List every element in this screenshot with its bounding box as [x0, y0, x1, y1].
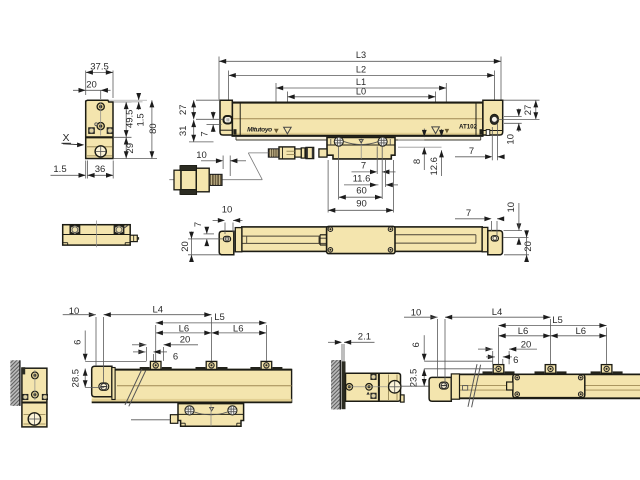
svg-text:49.5: 49.5	[124, 110, 135, 129]
svg-text:80: 80	[148, 123, 159, 134]
svg-text:20: 20	[523, 241, 534, 252]
svg-text:36: 36	[95, 164, 106, 175]
svg-text:37.5: 37.5	[90, 61, 109, 72]
svg-text:L6: L6	[233, 324, 244, 335]
svg-text:L6: L6	[179, 324, 190, 335]
svg-text:90: 90	[356, 199, 367, 210]
svg-text:L4: L4	[153, 304, 164, 315]
svg-text:L3: L3	[356, 50, 366, 60]
svg-text:2.1: 2.1	[358, 332, 371, 343]
svg-text:6: 6	[173, 351, 178, 362]
svg-text:1.5: 1.5	[136, 113, 147, 126]
svg-text:L0: L0	[356, 86, 366, 96]
svg-text:12.6: 12.6	[429, 157, 440, 176]
svg-text:L6: L6	[576, 326, 587, 337]
svg-text:10: 10	[222, 205, 233, 216]
svg-text:7: 7	[199, 131, 210, 136]
svg-text:1.5: 1.5	[53, 164, 66, 175]
svg-text:27: 27	[178, 104, 189, 115]
svg-text:10: 10	[506, 202, 517, 213]
svg-text:L5: L5	[552, 315, 563, 326]
svg-text:7: 7	[466, 208, 471, 219]
svg-text:7: 7	[469, 146, 474, 157]
svg-text:31: 31	[178, 126, 189, 137]
svg-text:10: 10	[69, 306, 80, 317]
svg-text:L4: L4	[492, 307, 503, 318]
svg-text:6: 6	[73, 340, 84, 345]
svg-text:27: 27	[523, 105, 534, 116]
svg-text:29: 29	[125, 143, 136, 154]
svg-text:20: 20	[180, 241, 191, 252]
svg-text:10: 10	[505, 134, 516, 145]
svg-text:6: 6	[411, 342, 422, 347]
svg-text:L2: L2	[356, 64, 366, 74]
svg-text:10: 10	[196, 150, 207, 161]
svg-text:Mitutoyo: Mitutoyo	[247, 126, 272, 133]
svg-text:L5: L5	[214, 312, 225, 323]
svg-text:20: 20	[180, 335, 191, 346]
svg-text:60: 60	[356, 186, 367, 197]
svg-text:28.5: 28.5	[71, 369, 82, 388]
svg-text:6: 6	[513, 355, 518, 366]
svg-text:23.5: 23.5	[409, 369, 420, 388]
svg-text:20: 20	[86, 80, 97, 91]
svg-text:11.6: 11.6	[353, 173, 371, 184]
svg-text:AT102: AT102	[459, 124, 478, 131]
svg-text:8: 8	[412, 159, 423, 164]
svg-text:L6: L6	[518, 326, 529, 337]
svg-text:7: 7	[361, 160, 366, 171]
svg-text:X: X	[62, 132, 69, 144]
svg-text:7: 7	[193, 222, 204, 227]
